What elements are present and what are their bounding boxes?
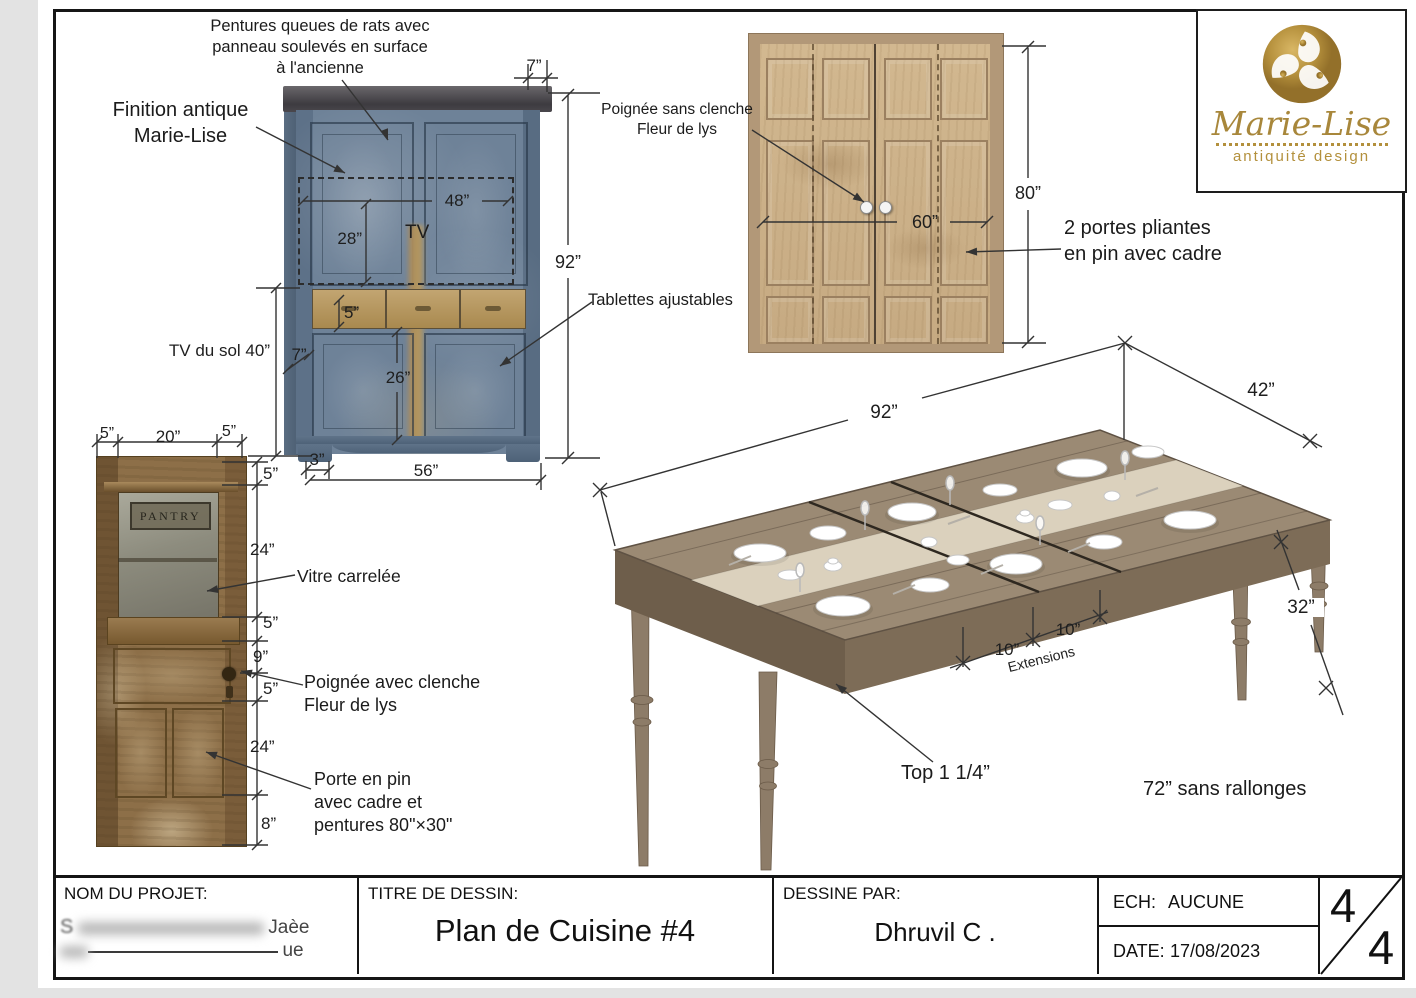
dim-pantry-panel-height: 24” xyxy=(250,738,275,755)
sheet-total: 4 xyxy=(1368,924,1394,971)
brand-logo-box: Marie-Lise antiquité design xyxy=(1196,9,1407,193)
door-knob-icon xyxy=(860,201,873,214)
scale-label: ECH: xyxy=(1113,892,1156,913)
pantry-mid-rail xyxy=(107,617,240,645)
door-panel xyxy=(884,58,932,120)
dim-cabinet-crown: 7” xyxy=(519,57,549,74)
brand-medallion-icon xyxy=(1259,21,1345,107)
door-fold-line xyxy=(812,44,814,344)
pantry-bottom-panel xyxy=(115,708,167,798)
sheet-number: 4 xyxy=(1330,882,1356,929)
dim-table-ext-2: 10” xyxy=(1047,621,1089,638)
callout-pantry-glass: Vitre carrelée xyxy=(297,565,447,587)
label-tv: TV xyxy=(405,223,429,242)
door-panel xyxy=(822,58,870,120)
dim-cabinet-width: 56” xyxy=(398,462,454,479)
callout-table-top: Top 1 1/4” xyxy=(901,761,1031,787)
date-value: 17/08/2023 xyxy=(1170,941,1260,962)
dim-table-width: 42” xyxy=(1235,381,1287,400)
pantry-shelf-line xyxy=(118,558,217,562)
dim-pantry-glass-height: 24” xyxy=(250,541,275,558)
dim-doors-width: 60” xyxy=(901,213,949,231)
note-no-extensions: 72” sans rallonges xyxy=(1143,777,1343,803)
callout-doors-handle: Poignée sans clenche Fleur de lys xyxy=(601,100,753,140)
cabinet-lower-door-right xyxy=(424,333,526,440)
dim-pantry-bottom-rail: 8” xyxy=(261,815,276,832)
pantry-wide-panel xyxy=(113,648,231,704)
dim-pantry-to-handle: 9” xyxy=(253,648,268,665)
dim-pantry-below-handle: 5” xyxy=(263,680,278,697)
door-panel xyxy=(766,58,814,120)
dim-drawer-height: 5” xyxy=(344,304,359,321)
date-label: DATE: xyxy=(1113,941,1165,962)
dim-lower-door: 26” xyxy=(378,369,418,386)
redacted-fragment: ue xyxy=(282,940,303,961)
redacted-fragment: Jaèe xyxy=(268,917,309,938)
door-panel xyxy=(940,296,988,344)
dim-tv-width: 48” xyxy=(428,192,486,209)
project-name-redacted: S Jaèe ue xyxy=(60,916,352,968)
cabinet-foot-right xyxy=(506,444,540,462)
drawing-sheet: PANTRY xyxy=(0,0,1416,998)
dim-pantry-stile-right: 5” xyxy=(216,424,242,440)
dim-side-return: 7” xyxy=(284,346,314,363)
callout-doors-type: 2 portes pliantes en pin avec cadre xyxy=(1064,216,1254,267)
dim-table-height: 32” xyxy=(1278,598,1324,617)
cabinet-crown-molding xyxy=(283,86,552,112)
cabinet-drawer xyxy=(460,289,526,329)
brand-name: Marie-Lise xyxy=(1198,107,1405,140)
dim-foot: 3” xyxy=(302,451,332,468)
drawn-by-label: DESSINE PAR: xyxy=(783,884,901,904)
label-tv-floor: TV du sol 40” xyxy=(152,342,270,359)
door-knob-icon xyxy=(879,201,892,214)
pantry-sign: PANTRY xyxy=(130,502,211,530)
dim-tv-height: 28” xyxy=(326,230,362,247)
brand-tagline: antiquité design xyxy=(1198,148,1405,165)
door-panel xyxy=(766,140,814,286)
drawn-by-value: Dhruvil C . xyxy=(773,917,1097,948)
scale-value: AUCUNE xyxy=(1168,892,1244,913)
dim-table-length: 92” xyxy=(854,403,914,422)
door-panel xyxy=(940,58,988,120)
project-name-label: NOM DU PROJET: xyxy=(64,884,208,904)
door-panel xyxy=(766,296,814,344)
callout-finish: Finition antique Marie-Lise xyxy=(93,98,268,149)
title-block-divider xyxy=(1097,925,1320,927)
door-panel xyxy=(884,296,932,344)
dim-pantry-stile-left: 5” xyxy=(95,426,119,442)
dim-cabinet-height: 92” xyxy=(546,253,590,271)
doors-center-split xyxy=(874,44,876,344)
pantry-cornice xyxy=(104,482,238,492)
dim-pantry-mid-rail: 5” xyxy=(263,614,278,631)
cabinet-skirt-arch xyxy=(332,444,506,453)
drawing-title-label: TITRE DE DESSIN: xyxy=(368,884,518,904)
pantry-bottom-panel xyxy=(172,708,224,798)
dim-pantry-top-rail: 5” xyxy=(263,465,278,482)
callout-hinges: Pentures queues de rats avec panneau sou… xyxy=(205,16,435,79)
callout-shelves: Tablettes ajustables xyxy=(588,290,738,311)
dim-pantry-glass-width: 20” xyxy=(148,428,188,445)
title-block-top-border xyxy=(53,875,1402,878)
drawing-title: Plan de Cuisine #4 xyxy=(358,913,772,949)
redacted-fragment: S xyxy=(60,916,73,938)
callout-pantry-door: Porte en pin avec cadre et pentures 80"×… xyxy=(314,768,514,837)
door-fold-line xyxy=(937,44,939,344)
callout-pantry-handle: Poignée avec clenche Fleur de lys xyxy=(304,671,524,717)
pantry-keyhole-icon xyxy=(226,686,233,698)
pantry-knob-icon xyxy=(222,667,236,681)
cabinet-drawer xyxy=(386,289,460,329)
door-panel xyxy=(822,296,870,344)
dim-doors-height: 80” xyxy=(1006,184,1050,202)
brand-divider xyxy=(1216,143,1388,146)
cabinet-skirt xyxy=(296,436,540,444)
